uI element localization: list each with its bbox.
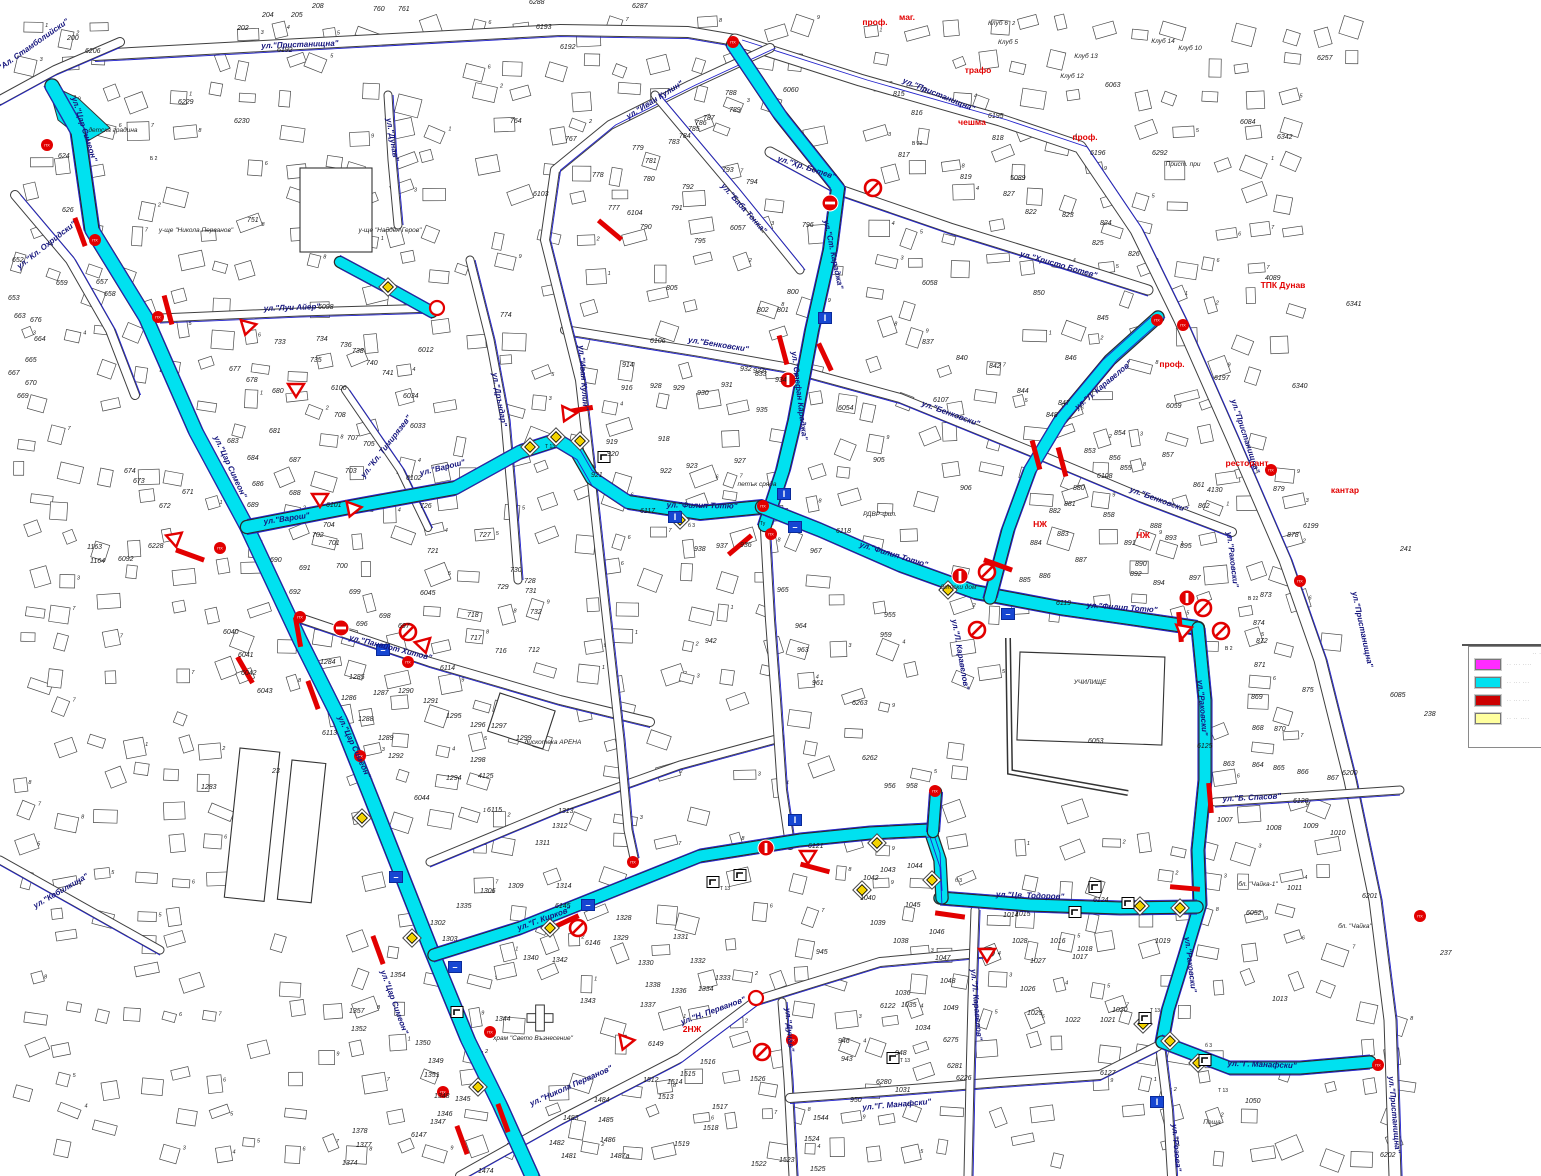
house-number: 4 bbox=[902, 639, 905, 645]
utility-label: чешма bbox=[958, 117, 986, 127]
building bbox=[764, 199, 784, 213]
hydrant-label: ПХ bbox=[1417, 914, 1423, 919]
house-number: 3 bbox=[1140, 432, 1144, 438]
place-label: дискотека АРЕНА bbox=[525, 738, 582, 746]
building bbox=[910, 974, 927, 994]
parcel-number: 6034 bbox=[403, 393, 419, 400]
parcel-number: 1306 bbox=[480, 888, 496, 895]
building bbox=[138, 201, 155, 221]
building bbox=[914, 491, 939, 511]
building bbox=[806, 496, 819, 513]
building bbox=[1273, 707, 1293, 725]
building bbox=[974, 389, 997, 403]
parcel-number: 1345 bbox=[455, 1096, 471, 1103]
parcel-number: 1297 bbox=[491, 723, 508, 730]
building bbox=[307, 254, 321, 268]
building bbox=[101, 1081, 120, 1101]
house-number: 3 bbox=[758, 772, 762, 778]
parcel-number: 861 bbox=[1193, 482, 1205, 489]
hydrant-label: ПХ bbox=[92, 238, 98, 243]
building bbox=[232, 424, 246, 438]
parcel-number: 774 bbox=[500, 312, 512, 319]
parcel-number: 1344 bbox=[495, 1016, 511, 1023]
building bbox=[21, 633, 35, 642]
building bbox=[622, 229, 647, 246]
house-number: 3 bbox=[1009, 973, 1013, 979]
building bbox=[289, 1072, 303, 1086]
parcel-number: 683 bbox=[227, 438, 239, 445]
parcel-number: 1303 bbox=[442, 936, 458, 943]
house-number: 8 bbox=[323, 255, 327, 261]
parcel-number: 794 bbox=[746, 179, 758, 186]
building bbox=[683, 300, 697, 312]
building bbox=[866, 287, 883, 299]
building bbox=[1178, 1005, 1190, 1018]
parcel-number: 663 bbox=[14, 313, 26, 320]
legend-item: ·· ··· ··· bbox=[1475, 695, 1541, 706]
parcel-number: 238 bbox=[1423, 711, 1436, 718]
parcel-number: 1047 bbox=[935, 955, 952, 962]
parcel-number: 1036 bbox=[895, 990, 911, 997]
parcel-number: 6092 bbox=[118, 556, 134, 563]
building bbox=[687, 807, 709, 825]
parcel-number: 716 bbox=[495, 648, 507, 655]
building bbox=[398, 1138, 414, 1153]
parcel-number: 6197 bbox=[1214, 375, 1231, 382]
parcel-number: 945 bbox=[816, 949, 828, 956]
house-number: 8 bbox=[962, 163, 966, 169]
parcel-number: 6114 bbox=[440, 665, 455, 672]
building bbox=[612, 534, 625, 550]
house-number: 2 bbox=[1215, 300, 1219, 306]
parcel-number: 848 bbox=[1046, 412, 1058, 419]
building bbox=[1174, 390, 1199, 404]
parcel-number: 871 bbox=[1254, 662, 1266, 669]
parcel-number: 1340 bbox=[523, 955, 539, 962]
building bbox=[160, 1144, 181, 1163]
parcel-number: 946 bbox=[838, 1038, 850, 1045]
parcel-number: 854 bbox=[1114, 430, 1126, 437]
building bbox=[163, 802, 185, 820]
building bbox=[172, 600, 186, 613]
building bbox=[134, 762, 150, 775]
house-number: 7 bbox=[1003, 363, 1007, 369]
sign-annotation: б 3 bbox=[955, 878, 962, 884]
parcel-number: 1302 bbox=[430, 920, 446, 927]
building bbox=[725, 939, 735, 950]
building bbox=[215, 656, 237, 679]
building bbox=[937, 1139, 948, 1154]
building bbox=[693, 252, 712, 264]
building bbox=[304, 53, 327, 73]
hydrant-label: ПХ bbox=[760, 504, 766, 509]
house-number: 6 bbox=[1216, 258, 1220, 264]
legend-label: ·· ··· ··· bbox=[1507, 698, 1530, 703]
house-number: 9 bbox=[1110, 1078, 1113, 1084]
legend: ·· ·· ·· ··· ···· ·· ··· ··· ·· ··· ··· … bbox=[1468, 646, 1541, 748]
house-number: 5 bbox=[111, 870, 115, 876]
parcel-number: 667 bbox=[8, 370, 21, 377]
building bbox=[654, 835, 678, 849]
house-number: 8 bbox=[198, 128, 202, 134]
parcel-number: 1513 bbox=[658, 1094, 674, 1101]
parcel-number: 6115 bbox=[487, 807, 502, 814]
building bbox=[809, 391, 823, 405]
parcel-number: 6230 bbox=[234, 118, 250, 125]
building bbox=[919, 426, 941, 446]
house-number: 5 bbox=[934, 769, 938, 775]
street-white bbox=[765, 530, 790, 845]
parcel-number: 6226 bbox=[956, 1075, 972, 1082]
house-number: 6 bbox=[628, 535, 632, 541]
building bbox=[176, 1109, 197, 1127]
building bbox=[679, 672, 694, 683]
place-label: Прист. при bbox=[1166, 161, 1201, 168]
parcel-number: 718 bbox=[467, 612, 479, 619]
parcel-number: 891 bbox=[1124, 540, 1136, 547]
no-entry-sign bbox=[765, 843, 768, 853]
building bbox=[1023, 330, 1047, 342]
no-entry-sign bbox=[959, 571, 962, 581]
house-number: 4 bbox=[620, 402, 623, 408]
parcel-number: 1016 bbox=[1050, 938, 1066, 945]
parcel-number: 680 bbox=[272, 388, 284, 395]
parcel-number: 1346 bbox=[437, 1111, 453, 1118]
building bbox=[1167, 202, 1187, 211]
info-sign-glyph: – bbox=[792, 522, 797, 532]
house-number: 4 bbox=[892, 221, 895, 227]
house-number: 8 bbox=[377, 1005, 381, 1011]
parcel-number: 1474 bbox=[478, 1168, 494, 1175]
parcel-number: 6128 bbox=[1293, 798, 1309, 805]
house-number: 2 bbox=[754, 971, 758, 977]
building bbox=[606, 417, 633, 436]
sign-annotation: Т 13 bbox=[1218, 1088, 1228, 1094]
parcel-number: 879 bbox=[1273, 486, 1285, 493]
house-number: 3 bbox=[771, 221, 775, 227]
parcel-number: 6104 bbox=[627, 210, 643, 217]
parcel-number: 6147 bbox=[411, 1132, 428, 1139]
house-number: 2 bbox=[1099, 336, 1103, 342]
building bbox=[48, 425, 66, 445]
building bbox=[251, 364, 270, 375]
building bbox=[1197, 424, 1213, 443]
building bbox=[979, 462, 1004, 476]
parcel-number: 1007 bbox=[1217, 817, 1234, 824]
house-number: 5 bbox=[551, 372, 555, 378]
parcel-number: 1050 bbox=[1245, 1098, 1261, 1105]
parcel-number: 1017 bbox=[1072, 954, 1089, 961]
house-number: 7 bbox=[774, 1110, 778, 1116]
building bbox=[835, 1011, 858, 1029]
street-white bbox=[95, 30, 735, 55]
building bbox=[1156, 540, 1178, 559]
house-number: 2 bbox=[157, 202, 161, 208]
parcel-number: 1338 bbox=[645, 982, 661, 989]
church-building bbox=[536, 1005, 545, 1031]
house-number: 1 bbox=[219, 500, 222, 506]
building bbox=[836, 866, 847, 881]
building bbox=[207, 1075, 223, 1094]
building bbox=[587, 598, 600, 612]
parcel-number: 805 bbox=[666, 285, 678, 292]
building bbox=[1250, 221, 1271, 236]
building bbox=[215, 1146, 232, 1163]
building bbox=[656, 393, 669, 409]
building bbox=[1091, 492, 1110, 509]
parcel-number: 1330 bbox=[638, 960, 654, 967]
parcel-number: 6200 bbox=[1342, 770, 1358, 777]
house-number: 3 bbox=[261, 30, 265, 36]
parcel-number: 956 bbox=[884, 783, 896, 790]
parcel-number: 732 bbox=[530, 609, 542, 616]
building bbox=[173, 712, 187, 726]
house-number: 2 bbox=[1122, 840, 1126, 846]
building bbox=[197, 401, 217, 412]
building bbox=[136, 872, 158, 884]
parcel-number: 692 bbox=[289, 589, 301, 596]
building bbox=[1132, 193, 1149, 211]
building bbox=[720, 669, 735, 685]
house-number: 8 bbox=[44, 975, 48, 981]
parcel-number: 5089 bbox=[1010, 175, 1026, 182]
building bbox=[1284, 930, 1302, 943]
building bbox=[942, 461, 960, 477]
parcel-number: 818 bbox=[992, 135, 1004, 142]
building bbox=[87, 734, 105, 748]
building bbox=[141, 1078, 163, 1096]
building bbox=[1175, 261, 1198, 279]
house-number: 5 bbox=[522, 505, 526, 511]
house-number: 5 bbox=[1299, 94, 1303, 100]
building bbox=[387, 1109, 405, 1125]
place-label: у-ще "Никола Перванов" bbox=[158, 227, 234, 234]
parcel-number: 921 bbox=[591, 472, 603, 479]
building bbox=[723, 472, 737, 488]
parcel-number: 856 bbox=[1109, 455, 1121, 462]
building bbox=[1284, 53, 1301, 65]
parcel-number: 208 bbox=[311, 3, 324, 10]
building bbox=[1280, 151, 1301, 171]
building bbox=[867, 434, 885, 454]
parcel-number: 767 bbox=[565, 136, 578, 143]
building bbox=[349, 1040, 364, 1057]
building bbox=[326, 155, 343, 168]
house-number: 9 bbox=[892, 846, 895, 852]
building bbox=[546, 1103, 561, 1116]
place-label: Клуб 13 bbox=[1074, 52, 1098, 60]
building bbox=[51, 1043, 70, 1058]
building bbox=[609, 167, 622, 186]
parcel-number: 6122 bbox=[880, 1003, 896, 1010]
parcel-number: 853 bbox=[1084, 448, 1096, 455]
building bbox=[682, 641, 693, 652]
house-number: 4 bbox=[418, 458, 421, 464]
building bbox=[602, 401, 618, 415]
parcel-number: 920 bbox=[607, 451, 619, 458]
building bbox=[1280, 870, 1304, 883]
parcel-number: 6118 bbox=[836, 528, 851, 535]
parcel-number: 893 bbox=[1165, 535, 1177, 542]
house-number: 2 bbox=[499, 84, 503, 90]
parcel-number: 780 bbox=[643, 176, 655, 183]
building bbox=[1317, 864, 1330, 877]
parcel-number: 1329 bbox=[613, 935, 629, 942]
building bbox=[909, 161, 925, 174]
building bbox=[537, 963, 558, 980]
house-number: 5 bbox=[158, 913, 162, 919]
parcel-number: 684 bbox=[247, 455, 259, 462]
building bbox=[211, 330, 235, 350]
house-number: 4 bbox=[412, 367, 415, 373]
building bbox=[208, 803, 234, 822]
building bbox=[900, 228, 917, 249]
parcel-number: 1519 bbox=[674, 1141, 690, 1148]
parcel-number: 950 bbox=[850, 1097, 862, 1104]
parcel-number: 1352 bbox=[351, 1026, 367, 1033]
house-number: 9 bbox=[828, 298, 831, 304]
parcel-number: 922 bbox=[660, 468, 672, 475]
parcel-number: 935 bbox=[756, 407, 768, 414]
building bbox=[874, 52, 889, 65]
place-label: Клуб 14 bbox=[1151, 37, 1175, 45]
house-number: 3 bbox=[697, 673, 701, 679]
building bbox=[1279, 88, 1300, 105]
parcel-number: 6057 bbox=[730, 225, 747, 232]
parcel-number: 689 bbox=[247, 502, 259, 509]
parcel-number: 1311 bbox=[535, 840, 550, 847]
place-label: бл. "Чайка" bbox=[1338, 922, 1372, 930]
parcel-number: 6033 bbox=[410, 423, 426, 430]
building bbox=[1286, 304, 1306, 319]
building bbox=[24, 1012, 48, 1025]
parcel-number: 963 bbox=[797, 647, 809, 654]
hydrant-label: ПХ bbox=[1297, 579, 1303, 584]
house-number: 2 bbox=[221, 746, 225, 752]
parcel-number: 790 bbox=[640, 224, 652, 231]
building bbox=[1015, 839, 1026, 856]
building bbox=[364, 334, 379, 354]
parcel-number: 783 bbox=[668, 139, 680, 146]
building bbox=[991, 144, 1014, 162]
house-number: 7 bbox=[120, 633, 124, 639]
parcel-number: 937 bbox=[716, 543, 729, 550]
building bbox=[387, 946, 399, 958]
parcel-number: 905 bbox=[873, 457, 885, 464]
building bbox=[55, 813, 79, 832]
parcel-number: 1163 bbox=[87, 544, 102, 551]
building bbox=[1171, 847, 1187, 858]
parcel-number: 1354 bbox=[390, 972, 406, 979]
house-number: 2 bbox=[1011, 21, 1015, 27]
building bbox=[863, 125, 888, 142]
building bbox=[51, 908, 63, 919]
building bbox=[54, 1139, 71, 1158]
building bbox=[803, 741, 817, 756]
building bbox=[319, 1050, 335, 1064]
parcel-number: 802 bbox=[757, 307, 769, 314]
building bbox=[422, 1145, 447, 1163]
parcel-number: 1018 bbox=[1077, 946, 1093, 953]
parcel-number: 624 bbox=[58, 153, 70, 160]
parcel-number: 681 bbox=[269, 428, 281, 435]
building bbox=[680, 563, 692, 581]
parcel-number: 885 bbox=[1019, 577, 1031, 584]
house-number: 5 bbox=[484, 736, 488, 742]
house-number: 7 bbox=[191, 670, 195, 676]
legend-swatch-red bbox=[1475, 695, 1501, 706]
parcel-number: 929 bbox=[673, 385, 685, 392]
building bbox=[1020, 260, 1035, 275]
map-canvas[interactable]: 1234567891234567891234567891234567891234… bbox=[0, 0, 1541, 1176]
building bbox=[989, 1107, 1007, 1127]
direction-sign bbox=[707, 877, 719, 888]
building bbox=[1275, 468, 1295, 483]
building bbox=[1138, 1076, 1151, 1092]
parcel-number: 1013 bbox=[1272, 996, 1288, 1003]
building bbox=[53, 633, 68, 651]
parcel-number: 6117 bbox=[640, 508, 656, 515]
house-number: 6 bbox=[488, 64, 492, 70]
building bbox=[1245, 125, 1262, 139]
building bbox=[1351, 1151, 1373, 1167]
house-number: 5 bbox=[448, 571, 452, 577]
street-edge-line bbox=[997, 317, 1165, 598]
building bbox=[57, 462, 83, 484]
building bbox=[58, 1102, 81, 1119]
parcel-number: 702 bbox=[312, 532, 324, 539]
house-number: 9 bbox=[1265, 916, 1268, 922]
parcel-number: 923 bbox=[686, 463, 698, 470]
building bbox=[172, 568, 196, 585]
building bbox=[98, 468, 114, 487]
utility-label: проф. bbox=[1072, 132, 1097, 142]
building bbox=[1196, 945, 1219, 960]
building bbox=[124, 92, 148, 114]
house-number: 6 bbox=[711, 1116, 715, 1122]
place-label: Поща bbox=[1203, 1119, 1221, 1126]
building bbox=[869, 220, 890, 237]
building bbox=[46, 268, 60, 280]
house-number: 1 bbox=[483, 808, 486, 814]
parcel-number: 6044 bbox=[414, 795, 430, 802]
direction-sign bbox=[1122, 898, 1134, 909]
direction-sign bbox=[1139, 1013, 1151, 1024]
building bbox=[507, 184, 534, 205]
house-number: 7 bbox=[678, 841, 682, 847]
parcel-number: 686 bbox=[252, 481, 264, 488]
parcel-number: 930 bbox=[697, 390, 709, 397]
building bbox=[162, 1011, 177, 1022]
building bbox=[647, 730, 672, 750]
building bbox=[274, 467, 295, 488]
parcel-number: 1290 bbox=[398, 688, 414, 695]
parcel-number: 1284 bbox=[320, 659, 336, 666]
house-number: 3 bbox=[40, 57, 44, 63]
parcel-number: 698 bbox=[379, 613, 391, 620]
parcel-number: 1027 bbox=[1030, 958, 1047, 965]
building bbox=[288, 371, 308, 381]
building bbox=[730, 1031, 751, 1047]
house-number: 6 bbox=[223, 1077, 227, 1083]
building bbox=[203, 834, 222, 849]
building bbox=[586, 269, 607, 285]
house-number: 9 bbox=[891, 880, 894, 886]
building bbox=[1027, 188, 1043, 205]
parcel-number: 1517 bbox=[712, 1104, 729, 1111]
building bbox=[808, 464, 826, 480]
info-sign-glyph: – bbox=[585, 900, 590, 910]
